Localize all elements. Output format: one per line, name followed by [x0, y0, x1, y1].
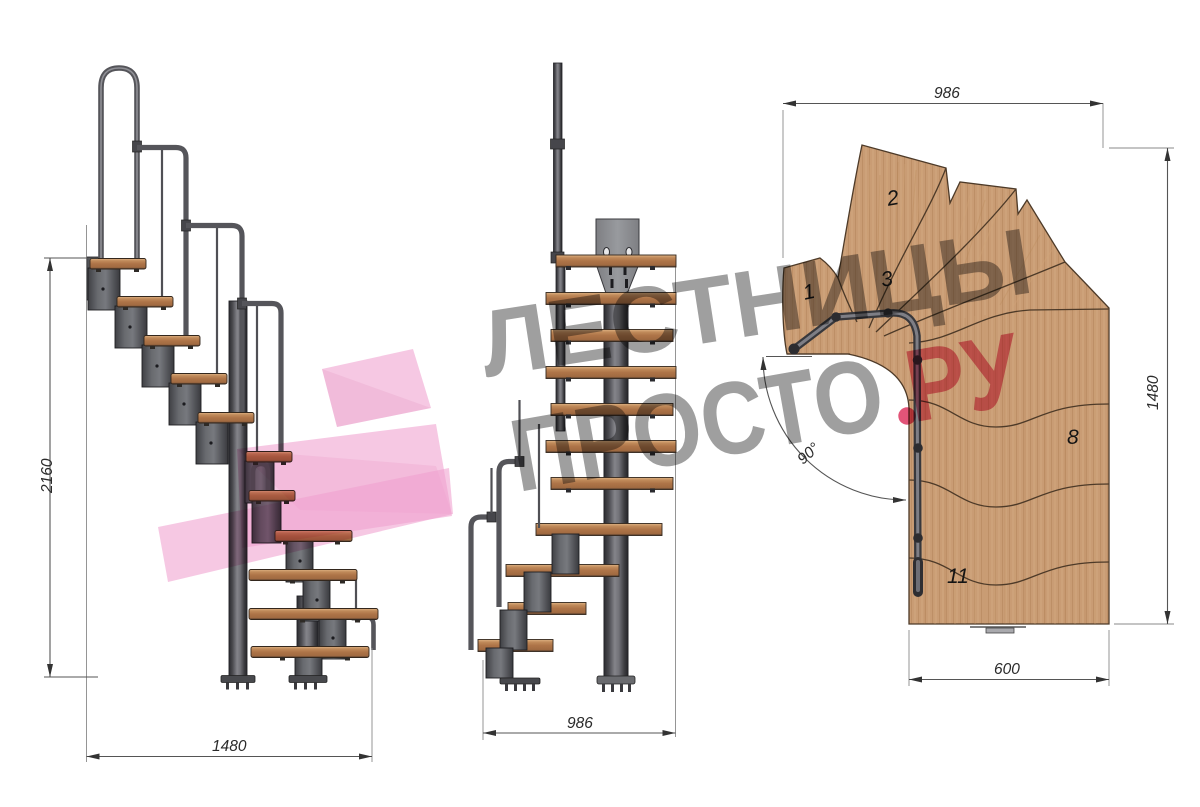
- svg-text:600: 600: [994, 661, 1020, 678]
- svg-text:986: 986: [567, 715, 593, 732]
- svg-text:1480: 1480: [212, 738, 247, 755]
- svg-text:11: 11: [947, 565, 969, 588]
- svg-text:986: 986: [934, 85, 960, 102]
- svg-text:2160: 2160: [39, 458, 56, 494]
- svg-text:8: 8: [1067, 426, 1079, 449]
- svg-text:1480: 1480: [1145, 375, 1162, 410]
